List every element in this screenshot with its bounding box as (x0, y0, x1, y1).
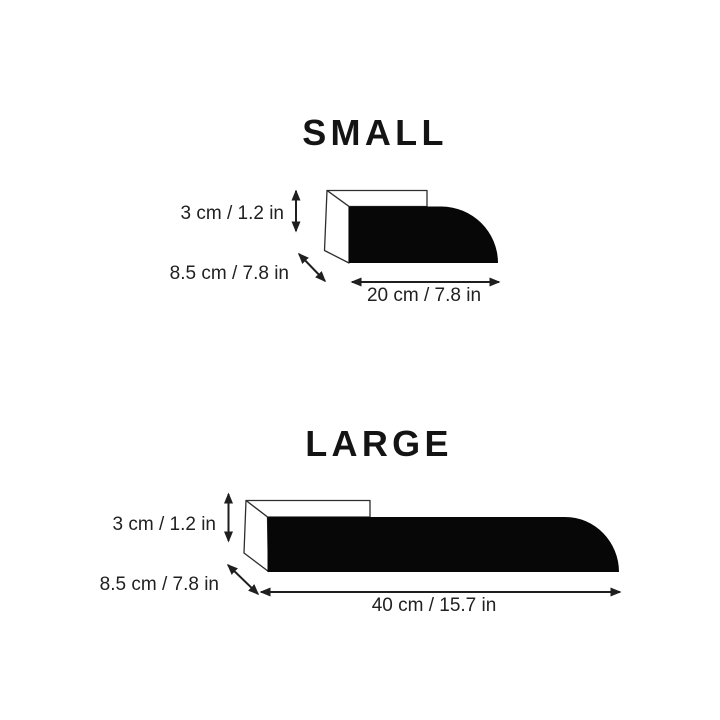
large-size-figure: LARGE 3 cm / 1.2 in 8.5 cm / 7.8 in 40 c… (100, 423, 620, 616)
doorstop-front-profile (349, 207, 498, 264)
depth-dimension-label: 8.5 cm / 7.8 in (100, 574, 219, 595)
depth-dimension-label: 8.5 cm / 7.8 in (170, 263, 289, 284)
height-dimension-label: 3 cm / 1.2 in (181, 203, 285, 224)
depth-dimension-arrow (228, 565, 258, 594)
dimensions-diagram-svg: SMALL 3 cm / 1.2 in 8.5 cm / 7.8 in 20 c… (0, 0, 720, 720)
product-dimensions-infographic: SMALL 3 cm / 1.2 in 8.5 cm / 7.8 in 20 c… (0, 0, 720, 720)
length-dimension-label: 20 cm / 7.8 in (367, 285, 481, 306)
small-size-title: SMALL (302, 112, 448, 153)
large-size-title: LARGE (305, 423, 453, 464)
small-size-figure: SMALL 3 cm / 1.2 in 8.5 cm / 7.8 in 20 c… (170, 112, 499, 306)
doorstop-front-profile (268, 517, 620, 572)
depth-dimension-arrow (299, 254, 325, 281)
height-dimension-label: 3 cm / 1.2 in (113, 514, 217, 535)
length-dimension-label: 40 cm / 15.7 in (372, 595, 497, 616)
